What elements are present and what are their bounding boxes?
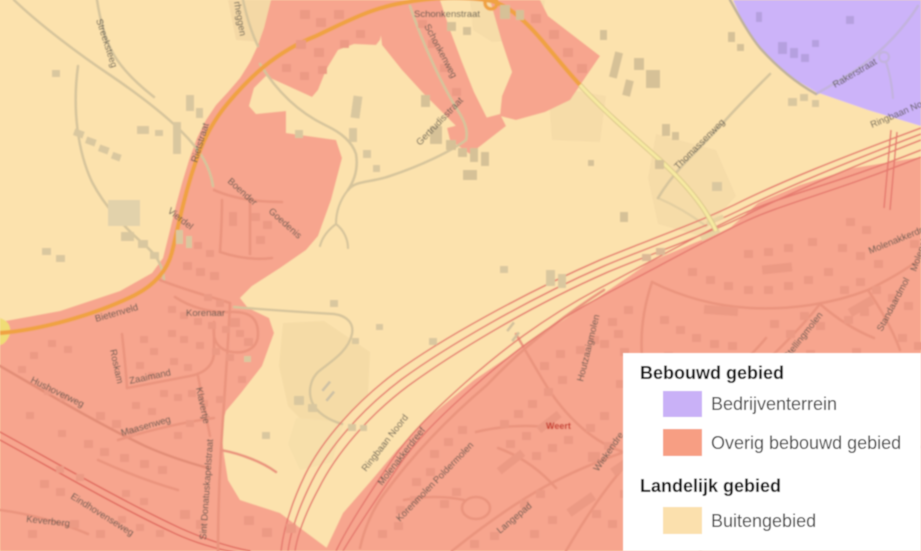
svg-text:Weert: Weert: [546, 421, 571, 431]
svg-text:Buitengebied: Buitengebied: [711, 511, 816, 531]
svg-text:Bebouwd gebied: Bebouwd gebied: [640, 363, 784, 383]
svg-text:Schonkenstraat: Schonkenstraat: [414, 9, 480, 20]
svg-text:Overig bebouwd gebied: Overig bebouwd gebied: [711, 433, 901, 453]
svg-text:Korenaar: Korenaar: [186, 308, 225, 319]
svg-text:Bedrijventerrein: Bedrijventerrein: [711, 394, 837, 414]
svg-text:Landelijk gebied: Landelijk gebied: [640, 476, 781, 496]
